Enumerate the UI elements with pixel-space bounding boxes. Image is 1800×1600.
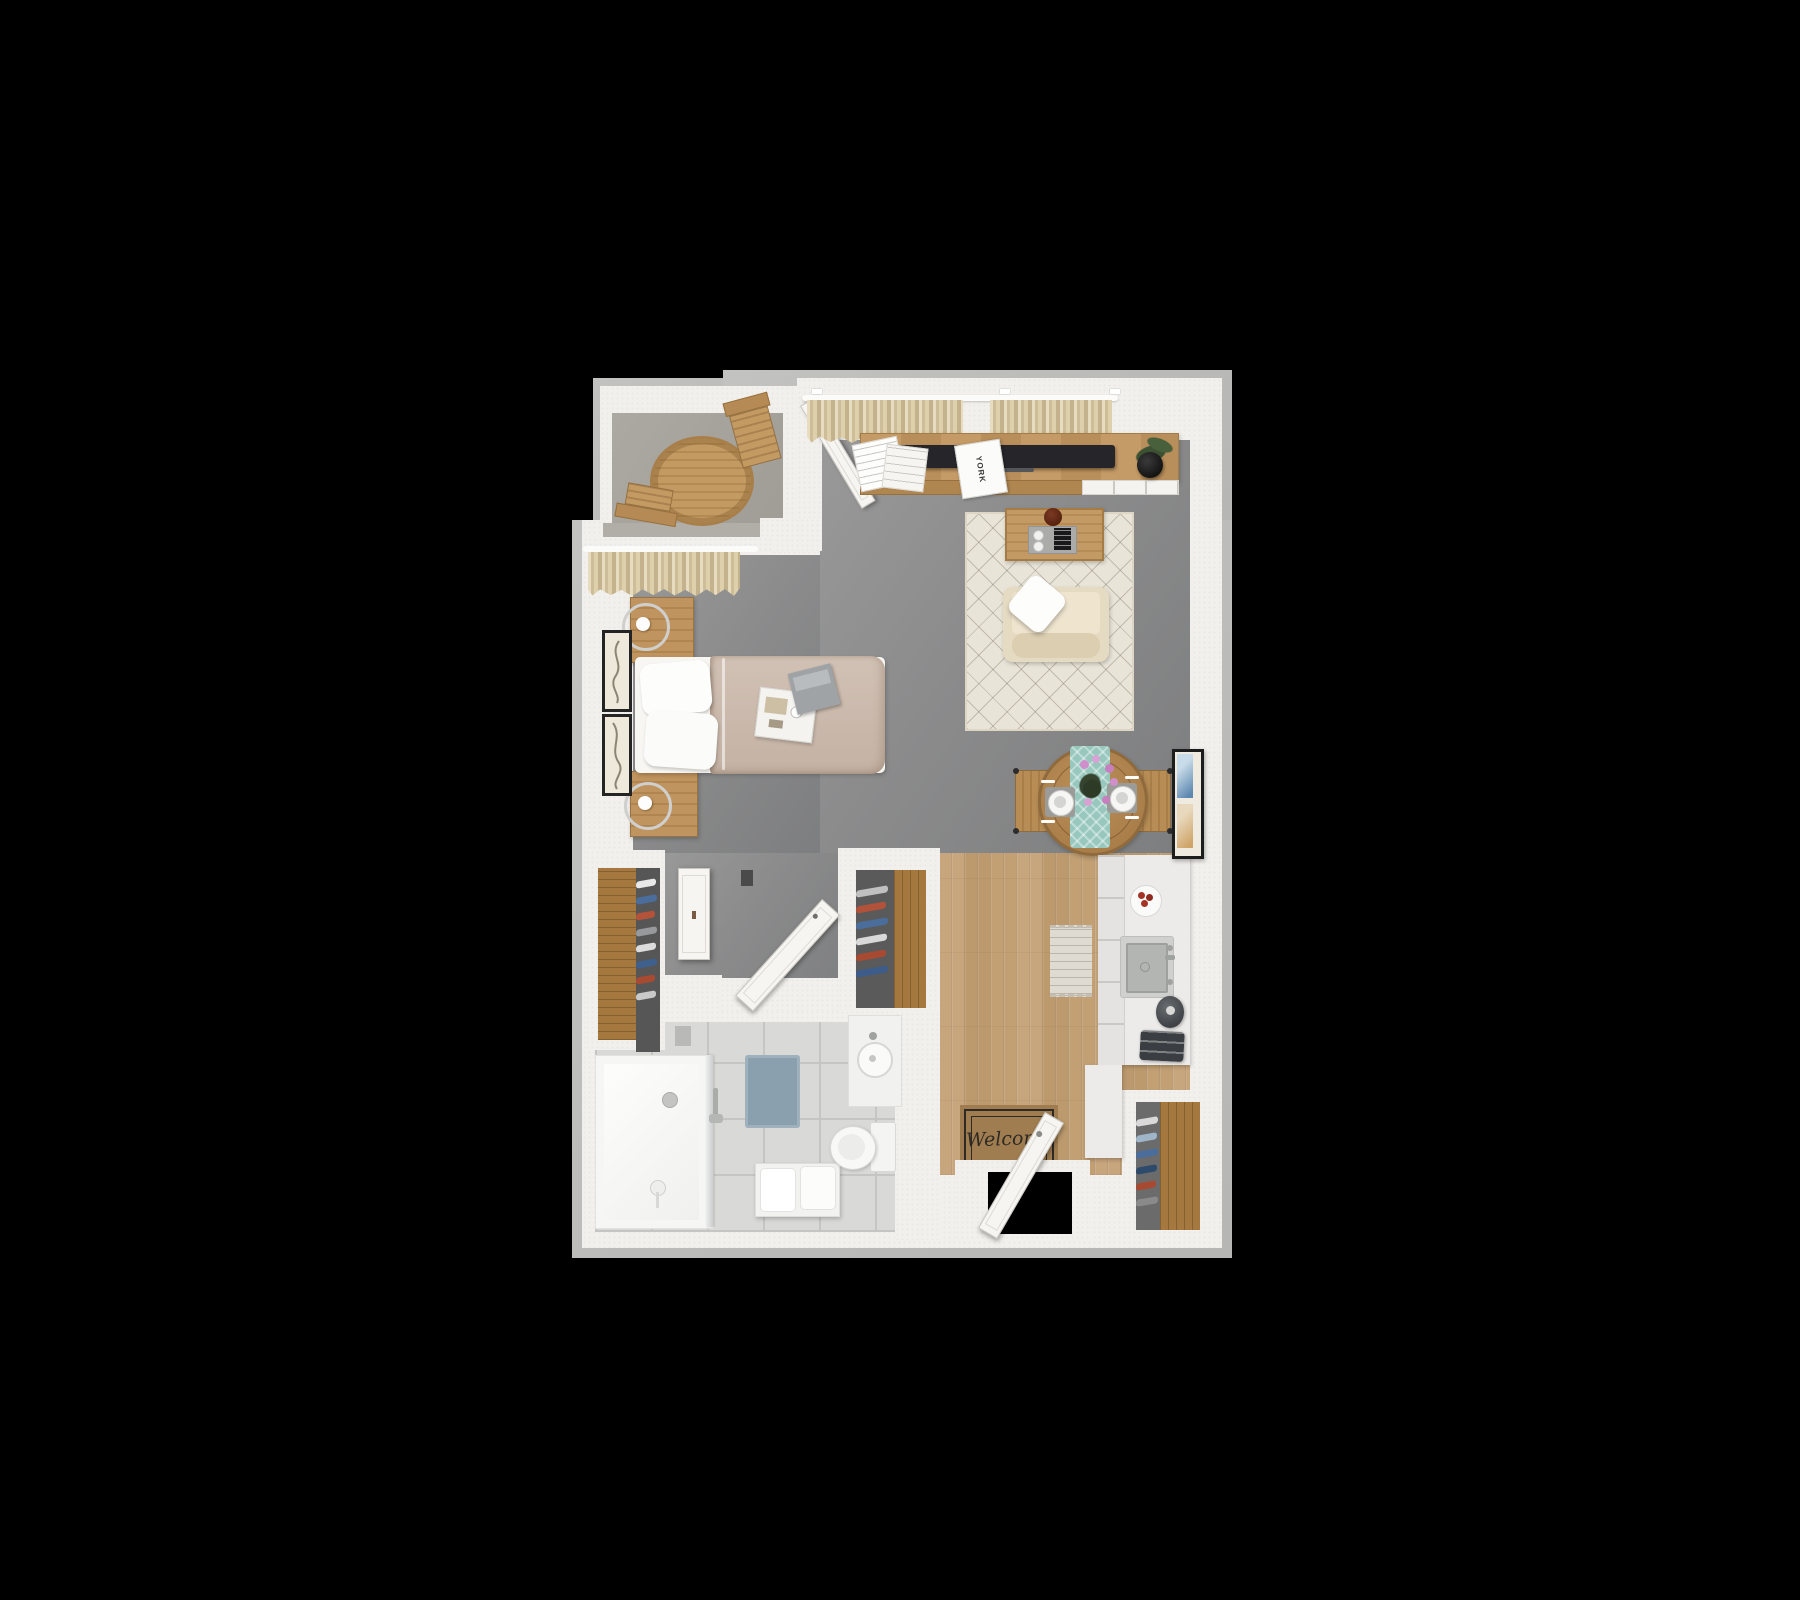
toaster: [1139, 1030, 1185, 1062]
plate-center: [1116, 792, 1128, 804]
armchair-back: [1012, 633, 1100, 658]
fruit: [1141, 900, 1148, 907]
shower-floor: [604, 1064, 699, 1220]
closet-middle-panel: [894, 870, 926, 1008]
closet-left-floor: [598, 868, 636, 1040]
shower-glass: [706, 1055, 713, 1227]
sink-drain: [1140, 962, 1150, 972]
towel: [760, 1168, 796, 1212]
vanity-sink-drain: [869, 1055, 876, 1062]
art-squiggle: [605, 633, 629, 709]
art-squiggle: [605, 717, 629, 793]
floor-plan: YORK: [562, 368, 1232, 1260]
wall-hall-stub: [660, 975, 722, 1008]
shower-head: [713, 1088, 718, 1116]
kettle-lid: [1166, 1006, 1175, 1015]
wall-art-frame: [602, 630, 632, 712]
curtain-bracket: [812, 389, 822, 394]
cup: [1033, 541, 1044, 552]
plate-center: [1054, 796, 1066, 808]
magazine-title: YORK: [974, 455, 987, 483]
bathroom-vanity: [848, 1015, 902, 1107]
curtain-bracket: [1000, 389, 1010, 394]
wall-art-bottom: [1177, 804, 1193, 848]
kitchen-cabinet-end: [1085, 1065, 1122, 1158]
tray-item: [768, 719, 783, 729]
fruit: [1146, 894, 1153, 901]
faucet: [1165, 955, 1175, 960]
towel-bench: [755, 1163, 840, 1217]
bed-blanket-fold: [722, 658, 725, 770]
shower-drain: [662, 1092, 678, 1108]
wall-slot: [741, 870, 753, 886]
wall-art-frame: [1172, 749, 1204, 859]
wall-art-top: [1177, 754, 1193, 798]
closet-middle-clothes: [856, 876, 894, 1014]
cutlery: [1041, 780, 1055, 783]
fruit: [1138, 892, 1145, 899]
faucet-handle: [1167, 945, 1173, 951]
curtain-rod-bedroom: [583, 546, 758, 552]
closet-left-clothes: [636, 868, 660, 1052]
lamp-orb: [638, 796, 652, 810]
orchid-flower: [1102, 796, 1110, 804]
laptop-keyboard: [793, 669, 831, 691]
wall-niche: [675, 1026, 691, 1046]
kitchen-sink: [1120, 936, 1174, 998]
magazine-top: YORK: [954, 439, 1008, 500]
towel: [800, 1166, 836, 1210]
toilet-brush-handle: [656, 1192, 659, 1208]
closet-entry-panel: [1160, 1102, 1200, 1230]
curtain-bracket: [1110, 389, 1120, 394]
kettle: [1156, 996, 1184, 1028]
bath-mat: [745, 1055, 800, 1128]
door-handle: [692, 911, 696, 919]
cutlery: [1125, 776, 1139, 779]
wall-art-frame: [602, 714, 632, 796]
tray-book: [764, 696, 788, 715]
kitchen-mat: [1050, 925, 1092, 997]
shower-head: [709, 1114, 723, 1123]
pillow: [643, 710, 719, 771]
vanity-faucet: [869, 1032, 877, 1040]
faucet-handle: [1167, 979, 1173, 985]
toilet-bowl: [830, 1126, 876, 1170]
pillow: [639, 659, 713, 717]
closet-pocket-door: [678, 868, 710, 960]
magazine: [881, 444, 928, 493]
orchid-flower: [1084, 798, 1092, 806]
plant-pot: [1137, 452, 1163, 478]
orchid-flower: [1105, 764, 1114, 773]
orchid-flower: [1092, 755, 1100, 763]
cutlery: [1125, 816, 1139, 819]
shower: [595, 1055, 714, 1229]
orchid-flower: [1080, 760, 1089, 769]
remote-box: [1054, 528, 1071, 550]
orchid-flower: [1110, 778, 1118, 786]
cutlery: [1041, 820, 1055, 823]
decor-bowl: [1044, 508, 1062, 526]
canvas: YORK: [0, 0, 1800, 1600]
lamp-orb: [636, 617, 650, 631]
closet-entry-clothes: [1136, 1106, 1162, 1238]
cup: [1033, 530, 1044, 541]
toilet-seat: [838, 1134, 865, 1160]
tv-console-drawers: [1082, 480, 1179, 495]
